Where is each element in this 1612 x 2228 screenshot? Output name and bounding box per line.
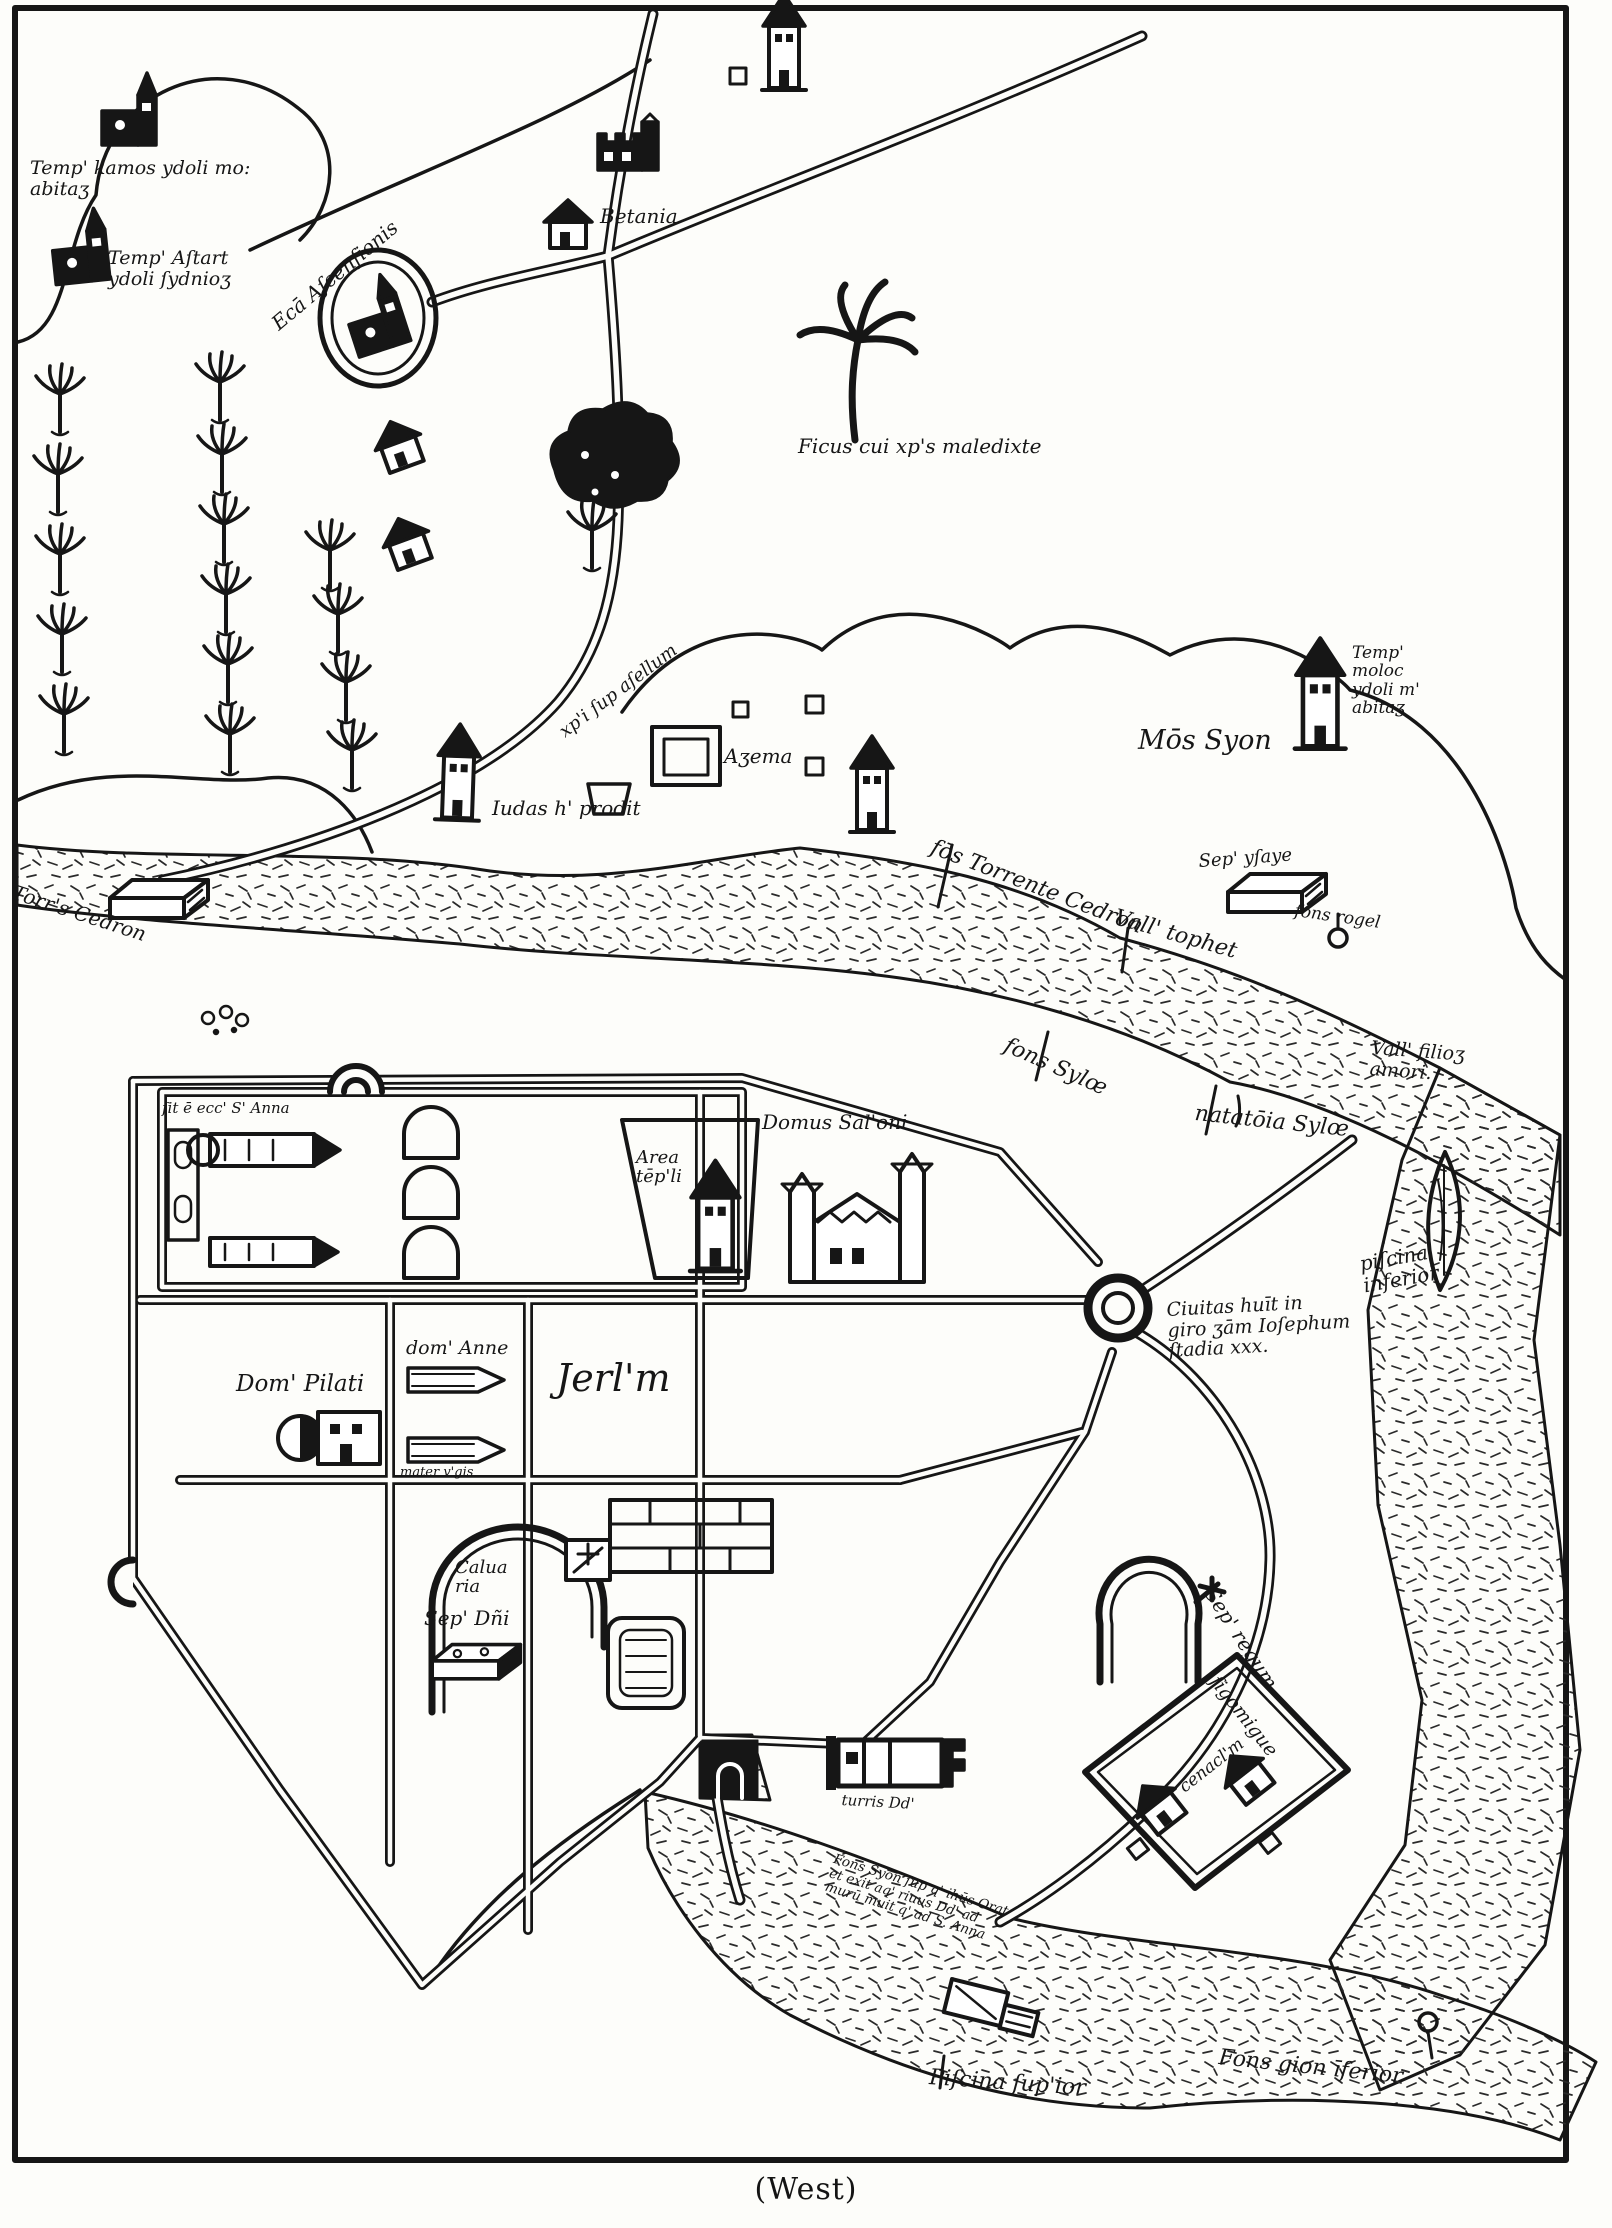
label-mons-syon: Mōs Syon bbox=[1138, 726, 1272, 755]
label-caluaria: Calua ria bbox=[455, 1558, 508, 1597]
dom-pilati-icon bbox=[278, 1412, 380, 1464]
label-temp-astart: Temp' Aſtart ydoli ſydnioʒ bbox=[108, 248, 231, 289]
east-gate bbox=[1088, 1278, 1148, 1338]
st-anna-churches-icon bbox=[168, 1130, 340, 1266]
palm-tree-icon bbox=[568, 500, 616, 571]
courtyard-icon bbox=[608, 1618, 684, 1708]
right-valley-stream bbox=[1330, 1068, 1580, 2090]
antique-jerusalem-map: Temp' kamos ydoli mo: abitaʒ Temp' Aſtar… bbox=[0, 0, 1612, 2228]
label-jerusalem: Jerl'm bbox=[556, 1358, 671, 1399]
label-ficus: Ficus cui xp's maledixte bbox=[798, 436, 1042, 458]
sepulchre-regum-icon bbox=[1099, 1559, 1224, 1682]
palm-tree-icon bbox=[40, 684, 88, 755]
valley-tower-east-icon bbox=[850, 736, 894, 832]
valley-tower-west-icon bbox=[435, 723, 482, 820]
palm-tree-icon bbox=[206, 704, 254, 775]
brick-building-icon bbox=[610, 1500, 772, 1572]
label-domus-salomonis: Domus Sal'oni bbox=[762, 1112, 907, 1134]
palm-tree-icon bbox=[196, 352, 244, 423]
palm-tree-icon bbox=[36, 524, 84, 595]
palm-tree-icon bbox=[204, 634, 252, 705]
palm-tree-icon bbox=[328, 720, 376, 791]
label-dom-pilati: Dom' Pilati bbox=[236, 1372, 364, 1397]
palm-tree-icon bbox=[322, 652, 370, 723]
temple-astart-icon bbox=[49, 207, 110, 284]
label-ecclesia-s-anna: ſit ē ecc' S' Anna bbox=[162, 1100, 290, 1116]
fons-rogel-spring-icon bbox=[1329, 929, 1347, 947]
palm-tree-icon bbox=[314, 584, 362, 655]
palm-tree-icon bbox=[36, 364, 84, 435]
label-turris-david: turris Dd' bbox=[841, 1792, 915, 1812]
torrens-cedron-bridge-icon bbox=[110, 880, 208, 918]
label-iudas: Iudas h' prodit bbox=[492, 798, 641, 820]
cursed-fig-tree-icon bbox=[800, 282, 915, 440]
temple-kamos-icon bbox=[102, 73, 156, 145]
label-betania: Betania bbox=[600, 206, 678, 228]
label-ciuitas-note: Ciuitas huīt in giro ʒām Ioſephum ſtadia… bbox=[1166, 1290, 1352, 1361]
betania-house-icon bbox=[544, 200, 592, 248]
triple-arches-icon bbox=[404, 1107, 458, 1278]
label-azema: Aʒema bbox=[724, 746, 792, 768]
chapel-icon bbox=[376, 510, 438, 572]
palm-tree-icon bbox=[38, 604, 86, 675]
label-dom-anne: dom' Anne bbox=[406, 1338, 508, 1359]
north-gate-arch bbox=[330, 1066, 382, 1092]
small-plot-icon bbox=[730, 68, 746, 84]
palm-tree-icon bbox=[306, 520, 354, 591]
label-vall-filiorum: Vall' filioʒ amori. bbox=[1369, 1038, 1465, 1085]
label-mater-virginis: mater v'gis bbox=[400, 1466, 473, 1480]
domus-salomonis-icon bbox=[782, 1154, 932, 1282]
palm-tree-icon bbox=[202, 564, 250, 635]
tree-cluster-icon bbox=[551, 403, 678, 507]
map-caption-west: (West) bbox=[0, 2172, 1612, 2207]
west-gate-arch bbox=[111, 1560, 133, 1604]
label-sep-dni: Sep' Dñi bbox=[424, 1608, 510, 1630]
south-gate bbox=[702, 1740, 758, 1798]
chapel-icon bbox=[368, 413, 430, 475]
label-area-templi: Area tēp'li bbox=[636, 1148, 682, 1187]
turris-david-icon bbox=[826, 1736, 964, 1790]
streams bbox=[17, 845, 1596, 2140]
palm-tree-icon bbox=[200, 494, 248, 565]
dom-anne-obelisks-icon bbox=[408, 1368, 504, 1462]
top-tower-icon bbox=[762, 0, 806, 90]
label-temp-moloc: Temp' moloc ydoli m' abitaʒ bbox=[1352, 644, 1420, 717]
torrens-cedron-stream bbox=[17, 845, 1560, 1235]
stones-icon bbox=[202, 1006, 248, 1034]
sepulchre-domini-icon bbox=[432, 1645, 520, 1679]
label-temp-kamos: Temp' kamos ydoli mo: abitaʒ bbox=[30, 158, 250, 199]
palm-tree-icon bbox=[198, 424, 246, 495]
palm-tree-icon bbox=[34, 444, 82, 515]
